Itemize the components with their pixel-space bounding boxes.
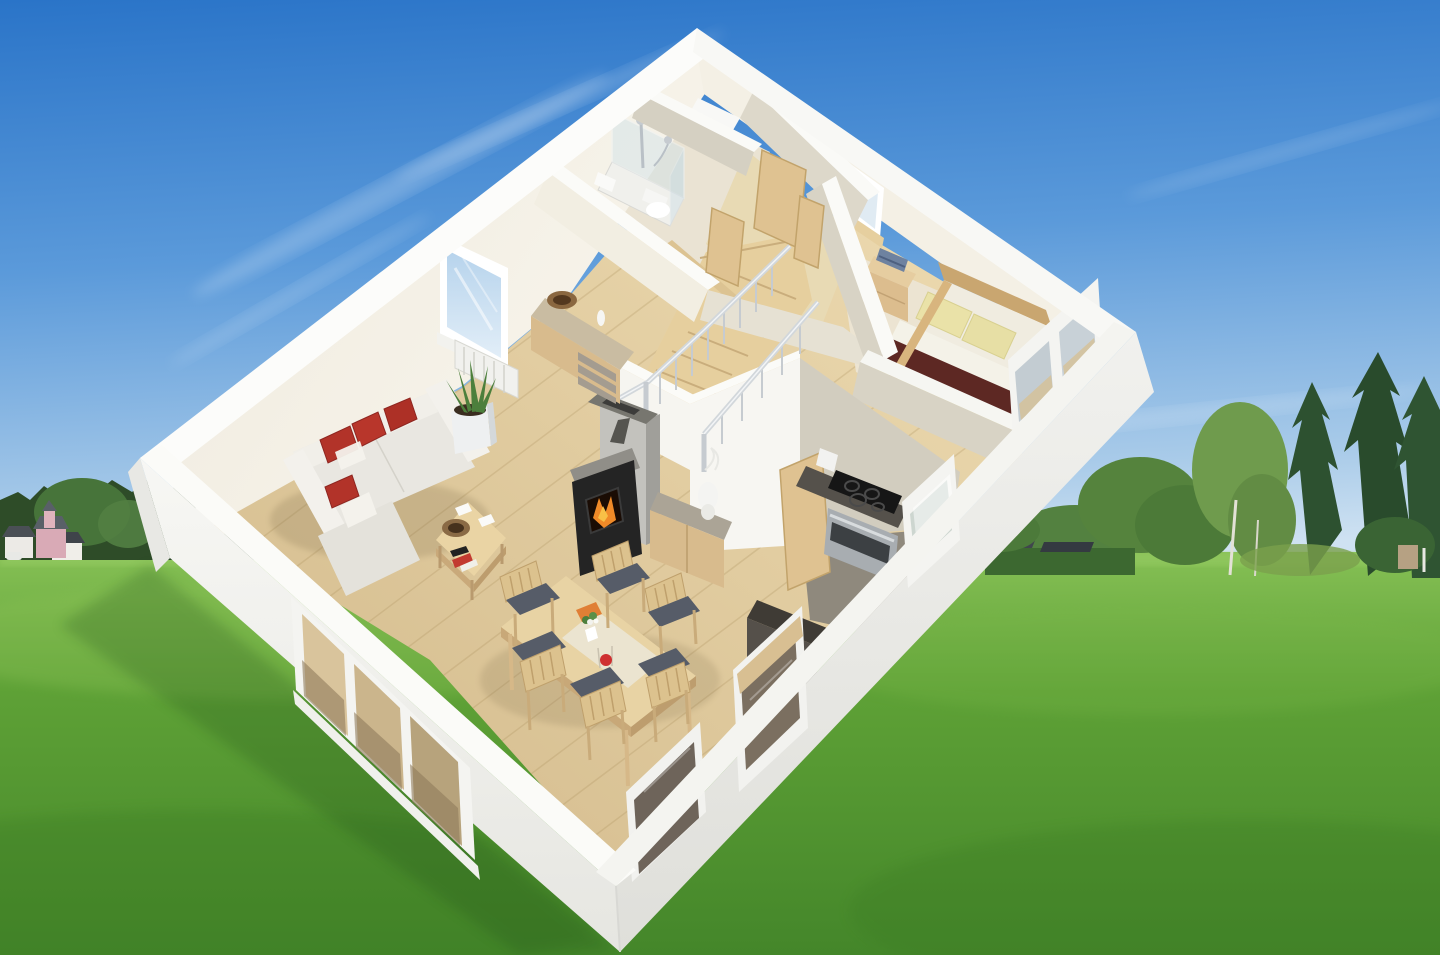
scene: 3D cutaway floor plan of a single-storey… xyxy=(0,0,1440,955)
utility-box xyxy=(1398,545,1418,569)
pink-house xyxy=(36,528,66,558)
figurine xyxy=(597,310,605,326)
floorplan-render-svg: 3D cutaway floor plan of a single-storey… xyxy=(0,0,1440,955)
tall-grass xyxy=(1240,544,1360,576)
red-apple xyxy=(600,654,612,666)
hedge xyxy=(985,548,1135,575)
toilet-bowl xyxy=(646,202,670,218)
shower-column xyxy=(641,122,643,168)
bathroom-door xyxy=(706,208,744,286)
pink-house-turret xyxy=(44,510,55,528)
bedroom-door xyxy=(794,196,824,268)
shed-roof xyxy=(1040,542,1094,552)
parked-car xyxy=(6,552,22,560)
